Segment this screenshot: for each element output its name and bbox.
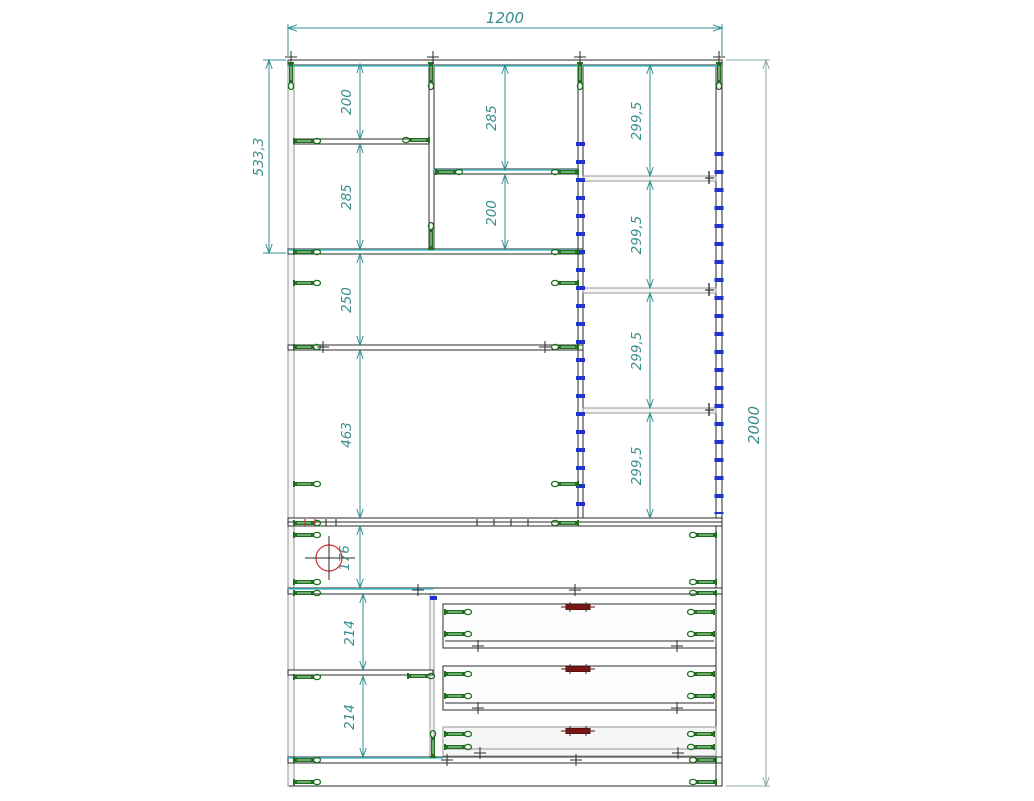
cad-drawing-canvas: 1200 533,3 2000 200 285 285 200 299,5 29… [0,0,1034,801]
dim-label-col3-4: 299,5 [629,447,645,486]
shelf-support-icon [705,171,714,184]
dimension-col1: 200 285 [339,64,363,249]
shelf-middle [288,345,583,350]
shelf-support-icon [705,283,714,296]
drawer-2 [443,664,716,714]
dim-label-250: 250 [339,287,355,313]
partition-top-left [429,65,434,249]
adjustable-shelf-2 [583,288,716,293]
dimension-overall-width: 1200 [288,9,722,56]
dim-label-col3-1: 299,5 [629,102,645,141]
adjustable-shelf-1 [583,176,716,181]
dim-label-col1-upper: 200 [339,89,355,115]
pin-mark [430,596,437,600]
dimension-col2: 285 200 [484,65,508,249]
dim-label-1200: 1200 [486,9,524,27]
dim-label-533-3: 533,3 [251,138,267,177]
dim-label-col3-3: 299,5 [629,332,645,371]
dimension-left-block: 533,3 [251,60,286,253]
dim-label-col3-2: 299,5 [629,216,645,255]
dim-label-214-1: 214 [342,620,358,646]
shelf-support-icon [705,403,714,416]
dim-label-2000: 2000 [745,406,763,444]
adjustable-shelf-3 [583,408,716,413]
dim-label-col1-lower: 285 [339,184,355,210]
dim-label-214-2: 214 [342,704,358,730]
drawer-1 [443,602,716,652]
dimension-overall-height: 2000 [726,60,770,786]
dim-label-col2-upper: 285 [484,105,500,131]
dim-label-463: 463 [339,422,355,448]
dimension-middle-sections: 250 463 176 [337,254,363,588]
dim-label-col2-lower: 200 [484,200,500,226]
drawer-3 [443,726,716,759]
dim-label-176: 176 [337,545,353,571]
